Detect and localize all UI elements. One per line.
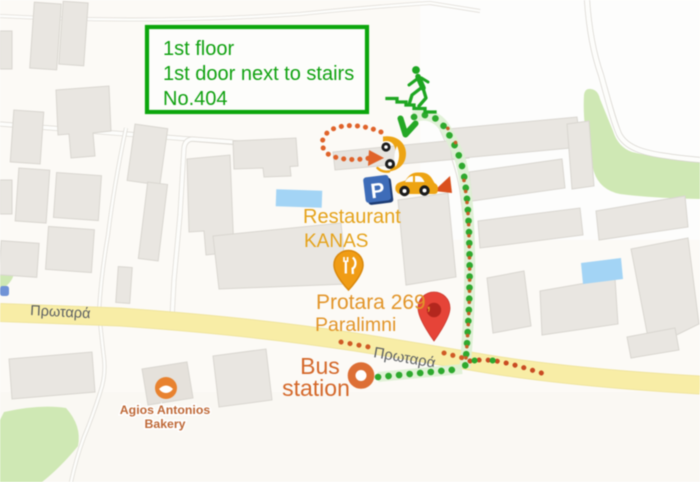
svg-text:Protara 269,: Protara 269, [316, 291, 432, 314]
svg-text:1st floor: 1st floor [163, 38, 234, 60]
svg-text:Bakery: Bakery [144, 417, 185, 431]
svg-text:Restaurant: Restaurant [303, 206, 401, 228]
svg-text:KANAS: KANAS [304, 231, 368, 252]
svg-text:Agios Antonios: Agios Antonios [120, 403, 211, 417]
svg-text:P: P [369, 179, 386, 204]
svg-text:No.404: No.404 [163, 88, 228, 110]
svg-text:station: station [282, 375, 350, 401]
svg-text:Πρωταρά: Πρωταρά [30, 303, 91, 322]
svg-text:1st door next to stairs: 1st door next to stairs [163, 63, 354, 85]
svg-text:Paralimni: Paralimni [315, 314, 396, 336]
